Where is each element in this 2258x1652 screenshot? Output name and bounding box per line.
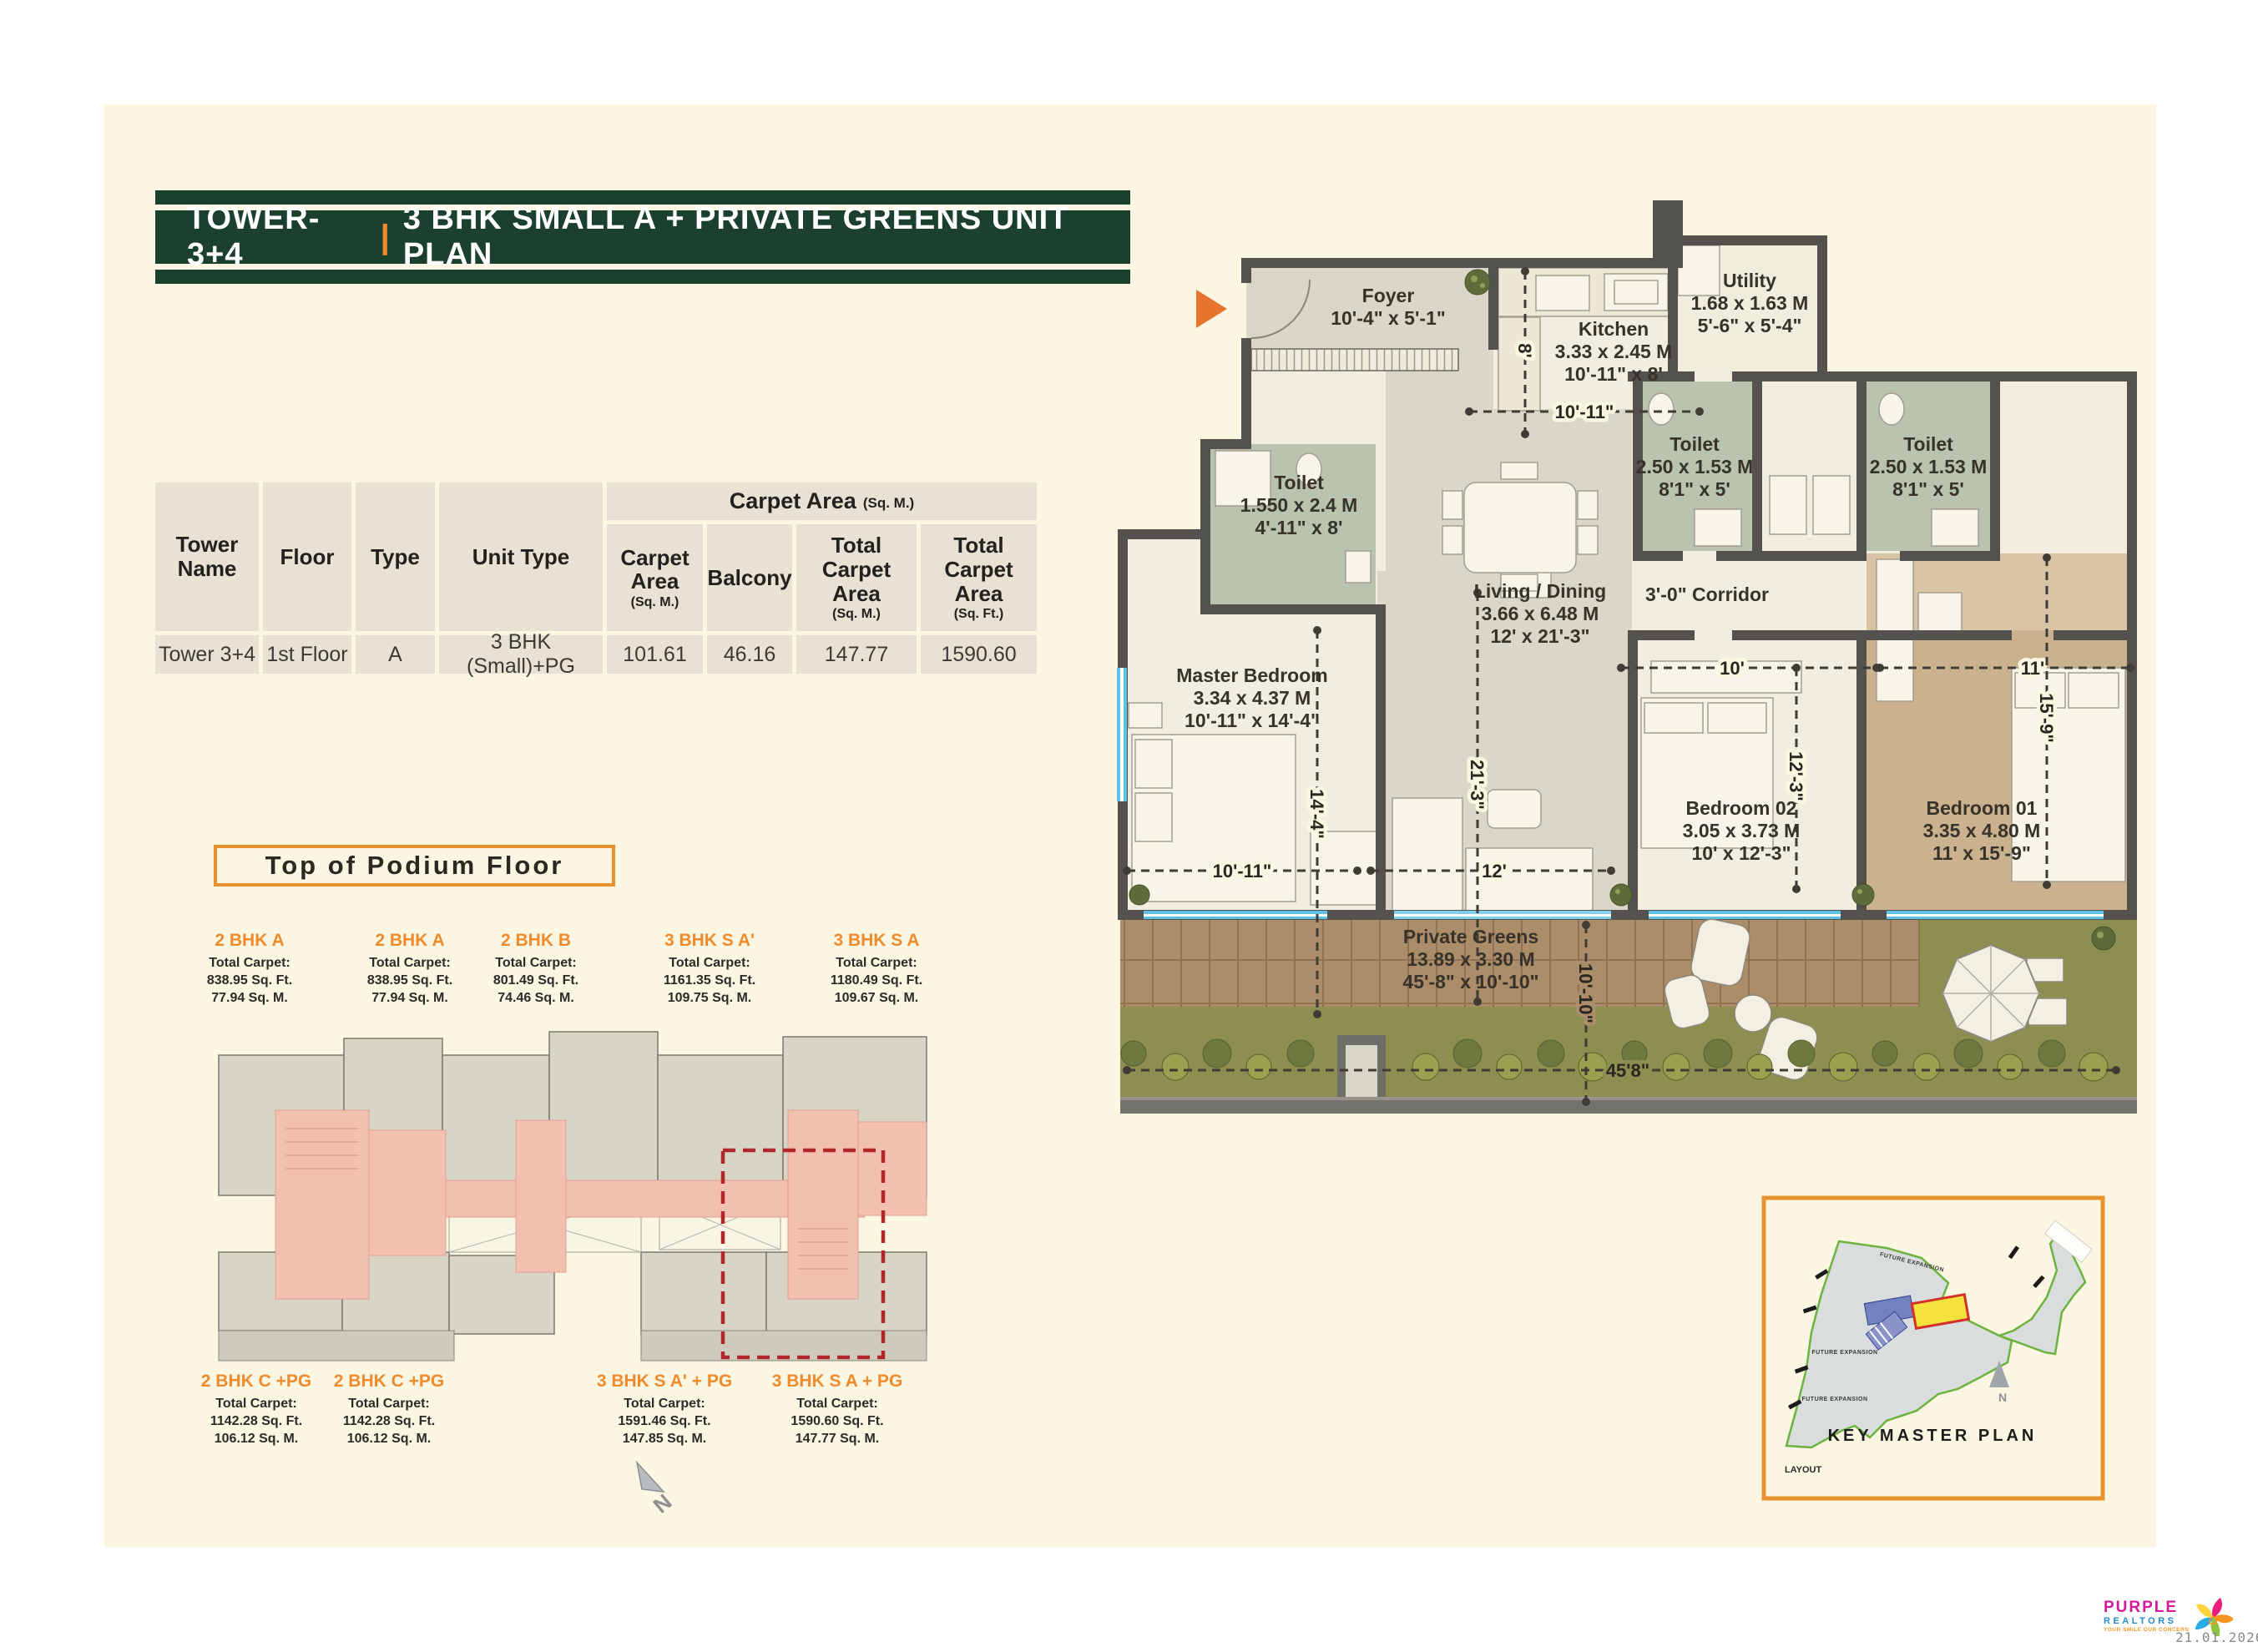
site-boundary	[1786, 1241, 2012, 1447]
col-header-unit-type: Unit Type	[439, 482, 603, 631]
group-header-carpet-area: Carpet Area(Sq. M.)	[607, 482, 1037, 520]
podium-unit-label: 2 BHK BTotal Carpet:801.49 Sq. Ft.74.46 …	[493, 931, 578, 1007]
room-label: Living / Dining3.66 x 6.48 M12' x 21'-3"	[1474, 580, 1606, 647]
cell-total-sqft: 1590.60	[921, 635, 1037, 674]
col-header-total-carpet-sqft: Total Carpet Area(Sq. Ft.)	[921, 524, 1037, 631]
podium-unit-label: 2 BHK C +PGTotal Carpet:1142.28 Sq. Ft.1…	[201, 1372, 311, 1447]
cell-balcony: 46.16	[707, 635, 792, 674]
future-expansion-label: FUTURE EXPANSION	[1801, 1397, 1867, 1402]
col-header-floor: Floor	[263, 482, 351, 631]
room-label: Bedroom 023.05 x 3.73 M10' x 12'-3"	[1683, 797, 1801, 864]
dimension-label: 11'	[2021, 658, 2045, 679]
title-divider: |	[381, 219, 390, 256]
brochure-page: { "title":{"tower":"TOWER-3+4","divider"…	[0, 0, 2258, 1652]
col-header-balcony: Balcony	[707, 524, 792, 631]
col-header-total-carpet-sqm: Total Carpet Area(Sq. M.)	[796, 524, 917, 631]
cell-floor: 1st Floor	[263, 635, 351, 674]
cell-total-sqm: 147.77	[796, 635, 917, 674]
north-label: N	[649, 1489, 677, 1518]
podium-heading: Top of Podium Floor	[214, 845, 615, 887]
podium-unit-label: 2 BHK ATotal Carpet:838.95 Sq. Ft.77.94 …	[207, 931, 292, 1007]
carpet-area-table: Tower Name Floor Type Unit Type Carpet A…	[155, 482, 1037, 674]
podium-unit-label: 3 BHK S ATotal Carpet:1180.49 Sq. Ft.109…	[831, 931, 922, 1007]
page-title: 3 BHK SMALL A + PRIVATE GREENS UNIT PLAN	[403, 201, 1130, 273]
dimension-label: 45'8"	[1606, 1060, 1649, 1081]
cell-unit-type: 3 BHK (Small)+PG	[439, 635, 603, 674]
tower-name: TOWER-3+4	[187, 201, 367, 273]
cell-tower: Tower 3+4	[155, 635, 259, 674]
title-bar: TOWER-3+4 | 3 BHK SMALL A + PRIVATE GREE…	[155, 190, 1130, 284]
unit-floor-plan: 8'10'-11"21'-3"14'-4"10'-11"12'10'11'12'…	[1110, 200, 2145, 1169]
room-label: Bedroom 013.35 x 4.80 M11' x 15'-9"	[1923, 797, 2041, 864]
entry-arrow-icon	[1196, 290, 1227, 328]
dimension-label: 10'-10"	[1575, 963, 1596, 1023]
podium-north-arrow: N	[622, 1452, 697, 1528]
podium-unit-label: 3 BHK S A' + PGTotal Carpet:1591.46 Sq. …	[597, 1372, 732, 1447]
dimension-label: 14'-4"	[1306, 789, 1327, 839]
dimension-label: 8'	[1514, 343, 1535, 357]
dimension-label: 21'-3"	[1467, 760, 1488, 810]
podium-unit-label: 3 BHK S A + PGTotal Carpet:1590.60 Sq. F…	[772, 1372, 903, 1447]
podium-floor-plan	[209, 1020, 935, 1371]
dimension-label: 12'-3"	[1786, 751, 1806, 801]
future-expansion-label: FUTURE EXPANSION	[1811, 1350, 1877, 1356]
dimension-label: 12'	[1482, 861, 1507, 882]
podium-unit-label: 3 BHK S A'Total Carpet:1161.35 Sq. Ft.10…	[664, 931, 755, 1007]
brand-name: PURPLE	[2104, 1599, 2189, 1615]
col-header-tower-name: Tower Name	[155, 482, 259, 631]
room-label: Master Bedroom3.34 x 4.37 M10'-11" x 14'…	[1176, 664, 1327, 731]
key-master-plan: FUTURE EXPANSION FUTURE EXPANSION FUTURE…	[1761, 1195, 2105, 1501]
dimension-label: 10'-11"	[1213, 861, 1272, 882]
date-stamp: 21.01.2026	[2175, 1629, 2258, 1645]
key-plan-north-label: N	[1998, 1391, 2007, 1404]
col-header-carpet-area: Carpet Area(Sq. M.)	[607, 524, 703, 631]
podium-unit-label: 2 BHK ATotal Carpet:838.95 Sq. Ft.77.94 …	[367, 931, 452, 1007]
key-plan-title: KEY MASTER PLAN	[1828, 1427, 2038, 1445]
dimension-label: 10'-11"	[1555, 402, 1614, 422]
col-header-type: Type	[356, 482, 435, 631]
cell-type: A	[356, 635, 435, 674]
cell-carpet-area: 101.61	[607, 635, 703, 674]
dimension-label: 15'-9"	[2036, 693, 2057, 743]
room-label: Private Greens13.89 x 3.30 M45'-8" x 10'…	[1402, 926, 1538, 993]
room-label: 3'-0" Corridor	[1645, 584, 1769, 605]
layout-label: LAYOUT	[1785, 1465, 1821, 1475]
dimension-label: 10'	[1720, 658, 1745, 679]
podium-unit-label: 2 BHK C +PGTotal Carpet:1142.28 Sq. Ft.1…	[334, 1372, 444, 1447]
umbrella-icon	[1942, 945, 2039, 1042]
brand-subname: REALTORS	[2104, 1617, 2189, 1626]
